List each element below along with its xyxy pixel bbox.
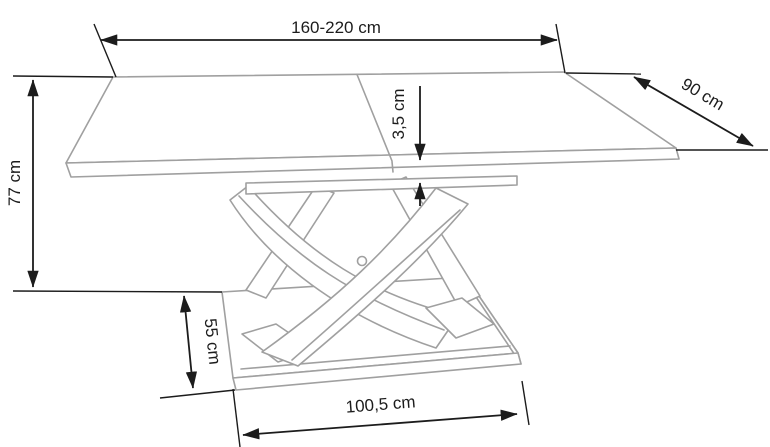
base-width-arrow (243, 414, 517, 435)
thickness-label: 3,5 cm (389, 88, 408, 139)
depth-label: 90 cm (678, 74, 728, 114)
pivot-bolt (358, 257, 367, 266)
tabletop-surface (66, 72, 676, 163)
height-label: 77 cm (5, 160, 24, 206)
base-depth-label: 55 cm (201, 317, 225, 365)
depth-extension-back (566, 73, 641, 74)
height-extension-bottom (13, 291, 222, 292)
diagram-canvas: 160-220 cm 77 cm 3,5 cm 90 cm 55 cm (0, 0, 770, 447)
dimension-base-width: 100,5 cm (233, 381, 529, 447)
dimension-length: 160-220 cm (94, 18, 565, 77)
base-width-extension-right (522, 381, 529, 425)
length-label: 160-220 cm (291, 18, 381, 37)
underframe-plate (246, 176, 517, 194)
base-depth-extension-bottom (160, 390, 235, 398)
base-depth-arrow (184, 296, 193, 388)
base-width-label: 100,5 cm (345, 392, 416, 416)
base-width-extension-left (233, 389, 240, 447)
length-tick-left (94, 24, 116, 77)
extendable-table-drawing (66, 72, 679, 390)
length-tick-right (556, 24, 565, 73)
table-dimension-diagram: 160-220 cm 77 cm 3,5 cm 90 cm 55 cm (0, 0, 770, 447)
height-extension-top (13, 76, 113, 77)
